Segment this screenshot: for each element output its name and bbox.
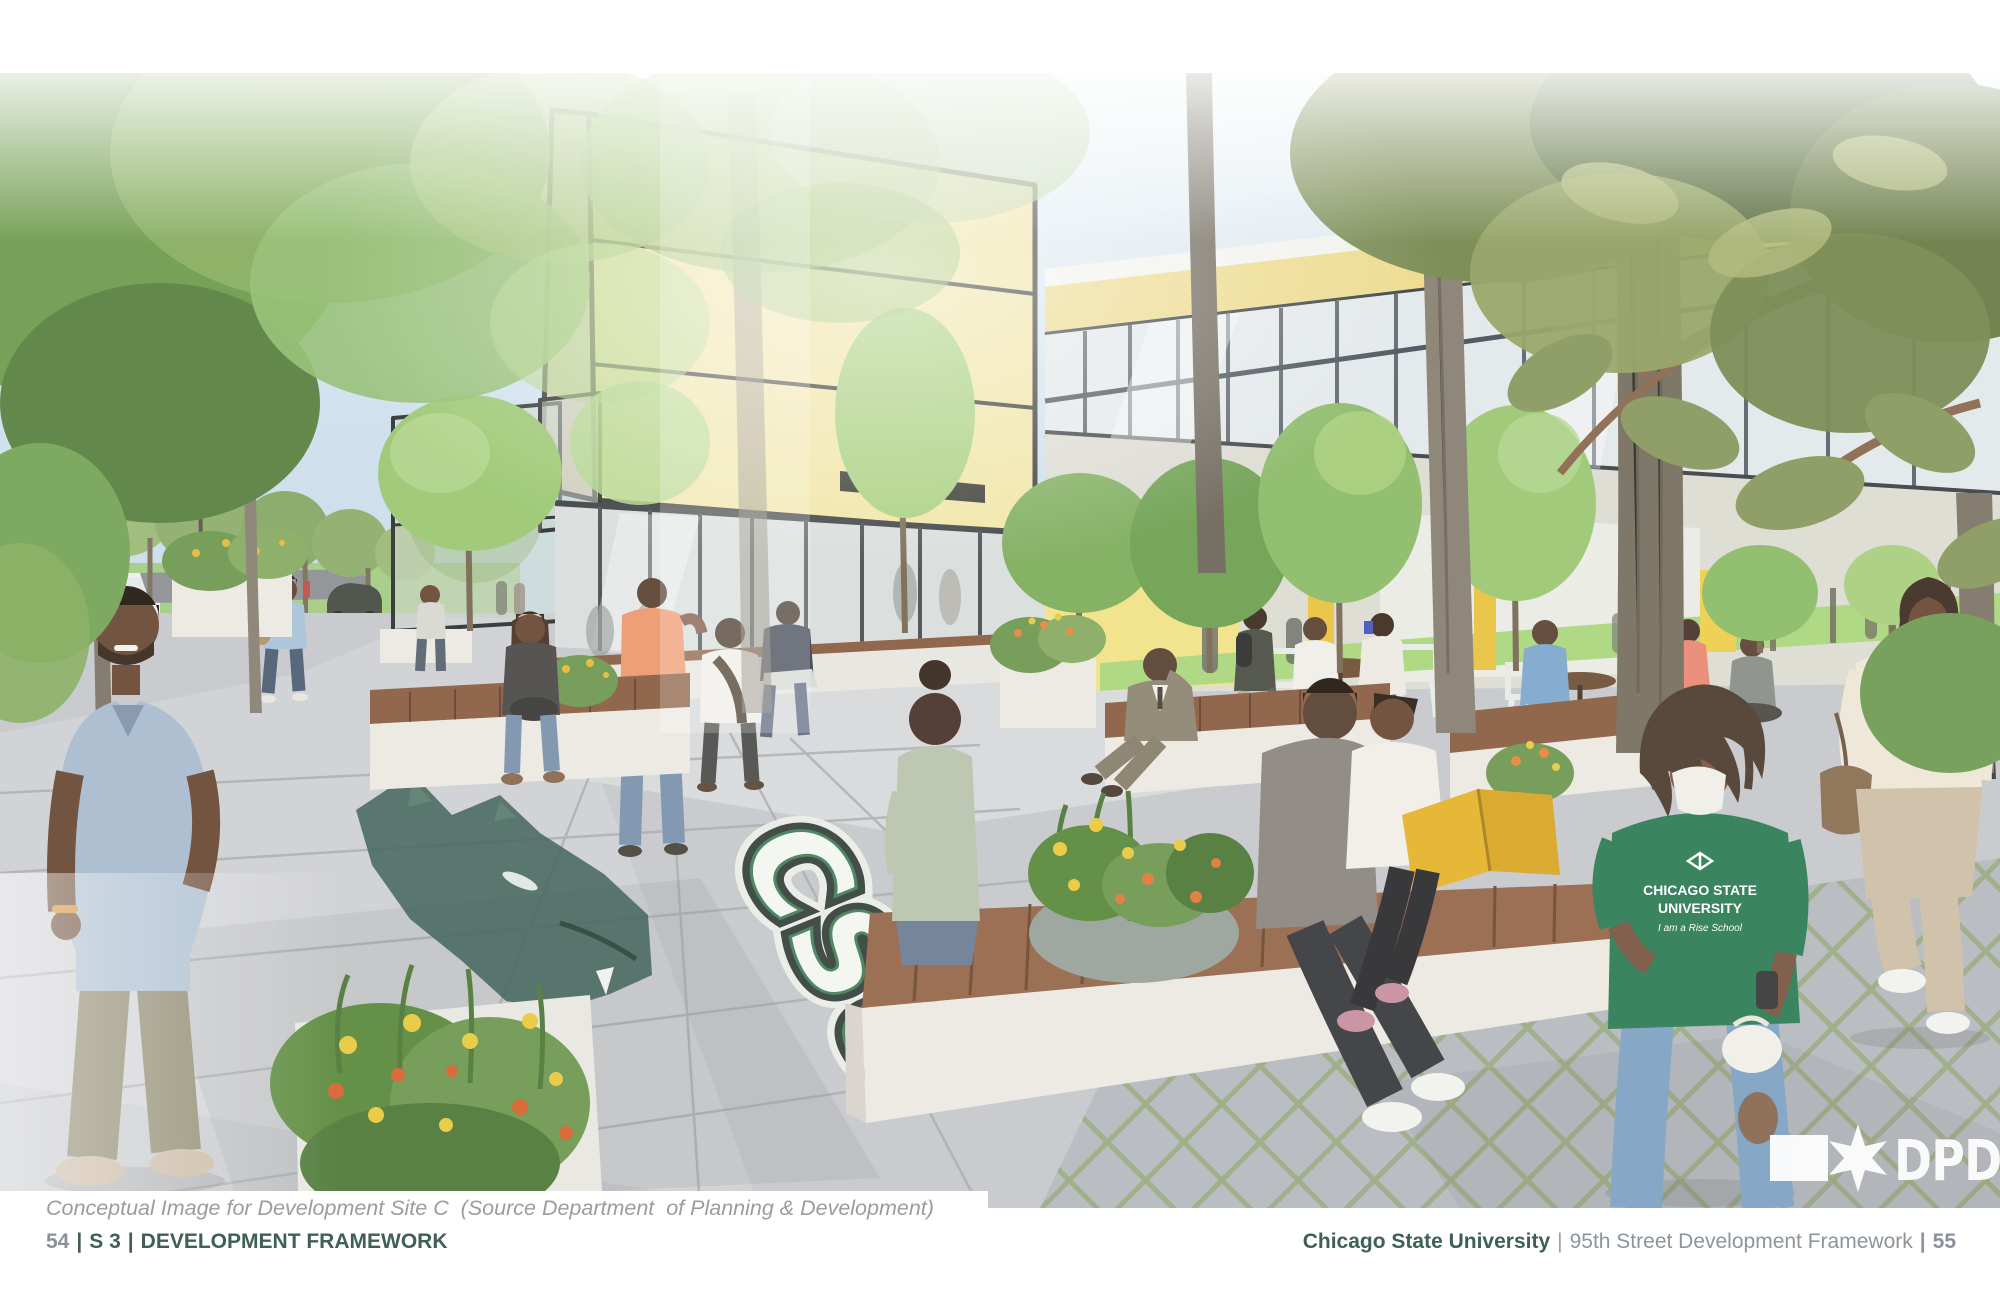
framework-title: 95th Street Development Framework <box>1570 1230 1913 1253</box>
section-title: DEVELOPMENT FRAMEWORK <box>141 1230 448 1253</box>
page-number-right: 55 <box>1933 1230 1956 1253</box>
document-page: CSU CSU CSU <box>0 0 2000 1294</box>
footer-right: Chicago State University|95th Street Dev… <box>1303 1229 1956 1254</box>
image-caption: Conceptual Image for Development Site C … <box>46 1196 1146 1221</box>
rendering-scene: CSU CSU CSU <box>0 73 2000 1208</box>
footer-separator: | <box>1557 1230 1562 1253</box>
dpd-logo-text: DPD <box>1894 1129 2000 1195</box>
university-name: Chicago State University <box>1303 1230 1550 1253</box>
footer-separator: | <box>128 1230 134 1253</box>
page-number-left: 54 <box>46 1230 69 1253</box>
footer-separator: | <box>1920 1230 1926 1253</box>
conceptual-rendering-image: CSU CSU CSU <box>0 73 2000 1208</box>
footer-left: 54|S 3|DEVELOPMENT FRAMEWORK <box>46 1229 448 1254</box>
footer-separator: | <box>76 1230 82 1253</box>
section-label: S 3 <box>89 1230 121 1253</box>
dpd-logo-rect <box>1770 1135 1828 1181</box>
